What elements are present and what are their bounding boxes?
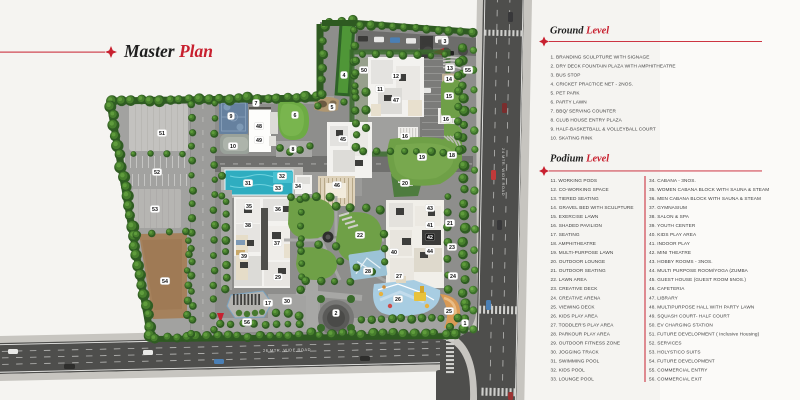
svg-text:18. AMPHITHEATRE: 18. AMPHITHEATRE: [551, 241, 597, 246]
svg-text:50: 50: [361, 68, 367, 74]
svg-text:30: 30: [284, 299, 290, 305]
svg-text:49: 49: [256, 138, 262, 144]
svg-text:45: 45: [340, 137, 346, 143]
svg-text:18: 18: [449, 153, 455, 159]
svg-text:8. CLUB HOUSE ENTRY PLAZA: 8. CLUB HOUSE ENTRY PLAZA: [551, 117, 623, 122]
svg-text:32: 32: [279, 174, 285, 180]
svg-text:37: 37: [274, 241, 280, 247]
svg-text:23. CREATIVE DECK: 23. CREATIVE DECK: [551, 286, 599, 291]
svg-text:34. CABANA - 3NOS.: 34. CABANA - 3NOS.: [649, 178, 696, 183]
svg-text:22. LAWN AREA: 22. LAWN AREA: [551, 277, 588, 282]
svg-text:25: 25: [446, 309, 452, 315]
svg-text:22: 22: [357, 233, 363, 239]
svg-text:56: 56: [244, 320, 250, 326]
svg-text:21: 21: [447, 221, 453, 227]
svg-text:36: 36: [275, 207, 281, 213]
svg-text:11. WORKING PODS: 11. WORKING PODS: [551, 178, 598, 183]
svg-text:17: 17: [265, 301, 271, 307]
svg-text:48. MULTIPURPOSE HALL WITH PAR: 48. MULTIPURPOSE HALL WITH PARTY LAWN: [649, 304, 754, 309]
svg-text:15: 15: [446, 94, 452, 100]
svg-text:28. PARKOUR PLAY AREA: 28. PARKOUR PLAY AREA: [551, 331, 611, 336]
svg-text:27. TODDLER'S PLAY AREA: 27. TODDLER'S PLAY AREA: [551, 322, 615, 327]
svg-text:4. CRICKET PRACTICE NET - 2NOS: 4. CRICKET PRACTICE NET - 2NOS.: [551, 81, 634, 86]
svg-text:19. MULTI-PURPOSE LAWN: 19. MULTI-PURPOSE LAWN: [551, 250, 614, 255]
svg-text:16: 16: [402, 134, 408, 140]
svg-text:52. SERVICES: 52. SERVICES: [649, 340, 682, 345]
svg-text:20. OUTDOOR LOUNGE: 20. OUTDOOR LOUNGE: [551, 259, 606, 264]
svg-text:55: 55: [465, 68, 471, 74]
svg-text:43. HOBBY ROOMS - 3NOS.: 43. HOBBY ROOMS - 3NOS.: [649, 259, 713, 264]
svg-text:51. FUTURE DEVELOPMENT ( Inclu: 51. FUTURE DEVELOPMENT ( Inclusive Housi…: [649, 331, 760, 336]
svg-text:20: 20: [402, 181, 408, 187]
svg-text:54. FUTURE DEVELOPMENT: 54. FUTURE DEVELOPMENT: [649, 358, 715, 363]
svg-text:46. CAFETERIA: 46. CAFETERIA: [649, 286, 685, 291]
svg-text:39: 39: [241, 254, 247, 260]
svg-text:55. COMMERCIAL ENTRY: 55. COMMERCIAL ENTRY: [649, 367, 708, 372]
svg-text:14: 14: [446, 77, 452, 83]
svg-text:3. BUS STOP: 3. BUS STOP: [551, 72, 581, 77]
svg-text:46: 46: [334, 183, 340, 189]
svg-text:Master Plan: Master Plan: [123, 41, 213, 61]
svg-text:56. COMMERCIAL EXIT: 56. COMMERCIAL EXIT: [649, 376, 702, 381]
svg-text:40. KIDS PLAY AREA: 40. KIDS PLAY AREA: [649, 232, 697, 237]
svg-text:47: 47: [393, 98, 399, 104]
svg-text:43: 43: [427, 206, 433, 212]
svg-text:44: 44: [427, 249, 433, 255]
svg-text:10. SKATING RINK: 10. SKATING RINK: [551, 136, 594, 141]
svg-text:9: 9: [230, 114, 233, 120]
svg-text:41: 41: [427, 223, 433, 229]
svg-text:1. BRANDING SCULPTURE WITH SIG: 1. BRANDING SCULPTURE WITH SIGNAGE: [551, 54, 650, 59]
svg-text:42: 42: [427, 235, 433, 241]
svg-text:39. YOUTH CENTER: 39. YOUTH CENTER: [649, 223, 696, 228]
svg-text:44. MULTI PURPOSE ROOM/YOGA (Z: 44. MULTI PURPOSE ROOM/YOGA (ZUMBA: [649, 268, 749, 273]
svg-text:15. EXERCISE LAWN: 15. EXERCISE LAWN: [551, 214, 599, 219]
svg-text:35: 35: [246, 204, 252, 210]
svg-text:3: 3: [444, 39, 447, 45]
svg-text:5. PET PARK: 5. PET PARK: [551, 90, 581, 95]
svg-text:26: 26: [395, 297, 401, 303]
svg-text:40: 40: [391, 250, 397, 256]
svg-text:34: 34: [295, 184, 301, 190]
svg-text:Ground Level: Ground Level: [550, 26, 609, 37]
svg-text:1: 1: [464, 321, 467, 327]
svg-text:25. VIEWING DECK: 25. VIEWING DECK: [551, 304, 596, 309]
svg-text:13: 13: [447, 66, 453, 72]
svg-text:2. DRY DECK FOUNTAIN PLAZA WIT: 2. DRY DECK FOUNTAIN PLAZA WITH AMPHITHE…: [551, 63, 676, 68]
svg-text:11: 11: [377, 87, 383, 93]
svg-text:6: 6: [294, 113, 297, 119]
svg-text:Podium Level: Podium Level: [550, 154, 609, 165]
svg-text:38: 38: [245, 223, 251, 229]
svg-text:31: 31: [245, 181, 251, 187]
svg-text:13. TIERED SEATING: 13. TIERED SEATING: [551, 196, 600, 201]
svg-text:26. KIDS PLAY AREA: 26. KIDS PLAY AREA: [551, 313, 599, 318]
svg-text:47. LIBRARY: 47. LIBRARY: [649, 295, 679, 300]
svg-text:23: 23: [449, 245, 455, 251]
svg-text:2: 2: [335, 311, 338, 317]
svg-text:50. EV CHARGING STATION: 50. EV CHARGING STATION: [649, 322, 713, 327]
svg-text:4: 4: [343, 73, 346, 79]
svg-text:32. KIDS POOL: 32. KIDS POOL: [551, 367, 586, 372]
svg-text:26 MTR. WIDE ROAD: 26 MTR. WIDE ROAD: [263, 347, 311, 353]
svg-text:29. OUTDOOR FITNESS ZONE: 29. OUTDOOR FITNESS ZONE: [551, 340, 621, 345]
svg-text:37. GYMNASIUM: 37. GYMNASIUM: [649, 205, 687, 210]
svg-text:31. SWIMMING POOL: 31. SWIMMING POOL: [551, 358, 600, 363]
svg-text:53. HOLYSTICO SUITS: 53. HOLYSTICO SUITS: [649, 349, 701, 354]
svg-text:51: 51: [159, 131, 165, 137]
svg-text:8: 8: [292, 147, 295, 153]
svg-text:45. GUEST HOUSE (GUEST ROOM 5N: 45. GUEST HOUSE (GUEST ROOM 5NOS.): [649, 277, 746, 282]
svg-text:52: 52: [154, 170, 160, 176]
svg-text:16. SHADED PAVILION: 16. SHADED PAVILION: [551, 223, 602, 228]
svg-text:6. PARTY LAWN: 6. PARTY LAWN: [551, 99, 587, 104]
svg-text:19: 19: [419, 155, 425, 161]
svg-text:54: 54: [162, 279, 168, 285]
svg-text:5: 5: [331, 105, 334, 111]
svg-text:48: 48: [256, 124, 262, 130]
svg-text:53: 53: [152, 207, 158, 213]
svg-text:10: 10: [230, 144, 236, 150]
svg-text:38. SALON & SPA: 38. SALON & SPA: [649, 214, 690, 219]
svg-text:49. SQUASH COURT- HALF COURT: 49. SQUASH COURT- HALF COURT: [649, 313, 730, 318]
svg-text:36. MEN CABANA BLOCK WITH SAUN: 36. MEN CABANA BLOCK WITH SAUNA & STEAM: [649, 196, 761, 201]
svg-text:7: 7: [255, 101, 258, 107]
svg-text:33: 33: [275, 186, 281, 192]
svg-text:35. WOMEN CABANA BLOCK WITH SA: 35. WOMEN CABANA BLOCK WITH SAUNA & STEA…: [649, 187, 769, 192]
svg-text:16: 16: [443, 117, 449, 123]
svg-text:29: 29: [275, 275, 281, 281]
svg-text:17. SEATING: 17. SEATING: [551, 232, 580, 237]
svg-text:21. OUTDOOR SEATING: 21. OUTDOOR SEATING: [551, 268, 606, 273]
svg-text:12. CO-WORKING SPACE: 12. CO-WORKING SPACE: [551, 187, 609, 192]
svg-text:42. MINI THEATRE: 42. MINI THEATRE: [649, 250, 691, 255]
svg-text:7. BBQ/ SERVING COUNTER: 7. BBQ/ SERVING COUNTER: [551, 108, 617, 113]
svg-text:12: 12: [393, 74, 399, 80]
svg-text:9. HALF-BASKETBALL & VOLLEYBAL: 9. HALF-BASKETBALL & VOLLEYBALL COURT: [551, 127, 656, 132]
svg-text:14. GRAVEL BED WITH SCULPTURE: 14. GRAVEL BED WITH SCULPTURE: [551, 205, 634, 210]
svg-text:28: 28: [365, 269, 371, 275]
svg-text:24 MTR. WIDE ROAD: 24 MTR. WIDE ROAD: [501, 148, 506, 196]
svg-text:24. CREATIVE ARENA: 24. CREATIVE ARENA: [551, 295, 602, 300]
svg-text:41. INDOOR PLAY: 41. INDOOR PLAY: [649, 241, 691, 246]
svg-text:33. LOUNGE POOL: 33. LOUNGE POOL: [551, 376, 595, 381]
svg-text:24: 24: [450, 274, 456, 280]
svg-text:27: 27: [396, 274, 402, 280]
svg-text:30. JOGGING TRACK: 30. JOGGING TRACK: [551, 349, 600, 354]
